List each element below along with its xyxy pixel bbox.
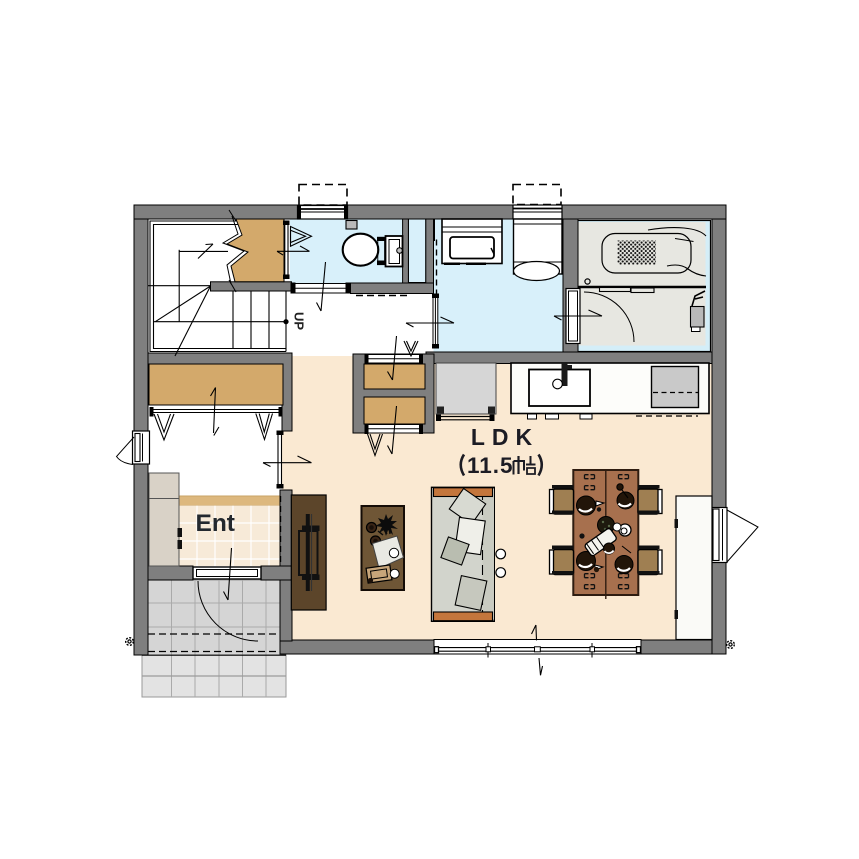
svg-text:LDK: LDK [471,424,539,450]
svg-text:Ent: Ent [196,510,235,537]
svg-text:11.5: 11.5 [467,453,514,478]
svg-text:UP: UP [292,312,307,330]
